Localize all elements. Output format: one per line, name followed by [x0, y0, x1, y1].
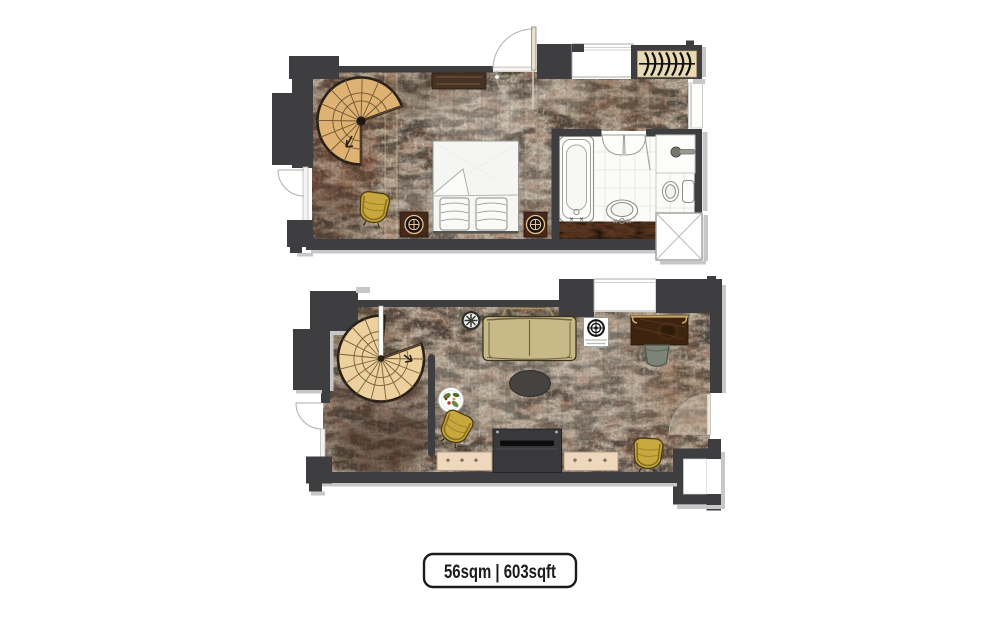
- svg-text:56sqm | 603sqft: 56sqm | 603sqft: [444, 561, 556, 583]
